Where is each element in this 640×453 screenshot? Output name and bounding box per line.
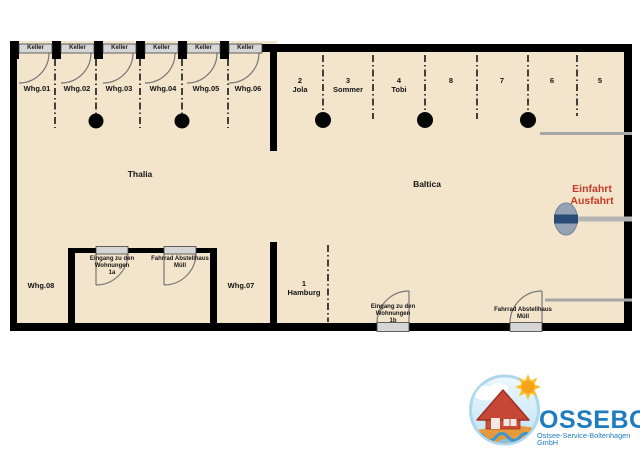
gate-line1: Einfahrt: [570, 183, 613, 195]
spot-number: 6: [550, 76, 554, 85]
keller-label-5: Keller: [195, 45, 212, 51]
parking-spot-8: 8: [449, 76, 453, 85]
spot-name: Hamburg: [288, 288, 321, 297]
floor-area: [10, 41, 632, 331]
keller-label-3: Keller: [111, 45, 128, 51]
building-thalia-label: Thalia: [128, 170, 153, 179]
parking-spot-5: 5: [598, 76, 602, 85]
spot-number: 3: [333, 76, 363, 85]
bike-shed-line2: Müll: [151, 263, 209, 270]
parking-spot-7: 7: [500, 76, 504, 85]
sun-icon: [515, 374, 541, 400]
spot-name: Tobi: [391, 85, 406, 94]
entrance-1b-line3: 1b: [371, 318, 415, 325]
bike-shed-left-label: Fahrrad Abstellhaus Müll: [151, 256, 209, 270]
keller-label-1: Keller: [27, 45, 44, 51]
gate-einfahrt-ausfahrt-label: Einfahrt Ausfahrt: [570, 183, 613, 207]
spot-whg01-label: Whg.01: [24, 85, 51, 93]
building-baltica-label: Baltica: [413, 180, 441, 189]
floor-plan-page: Keller Keller Keller Keller Keller Kelle…: [0, 0, 640, 453]
spot-number: 5: [598, 76, 602, 85]
entrance-1a-line1: Eingang zu den: [90, 256, 134, 263]
parking-spot-6: 6: [550, 76, 554, 85]
spot-whg02-label: Whg.02: [64, 85, 91, 93]
spot-name: Sommer: [333, 85, 363, 94]
entrance-1b-label: Eingang zu den Wohnungen 1b: [371, 304, 415, 325]
spot-number: 2: [292, 76, 307, 85]
spot-name: Jola: [292, 85, 307, 94]
spot-number: 4: [391, 76, 406, 85]
bike-shed-line2: Müll: [494, 314, 552, 321]
spot-number: 8: [449, 76, 453, 85]
floorplan-graphics: [0, 0, 640, 453]
keller-label-6: Keller: [237, 45, 254, 51]
bike-shed-line1: Fahrrad Abstellhaus: [494, 307, 552, 314]
spot-whg05-label: Whg.05: [193, 85, 220, 93]
gate-line2: Ausfahrt: [570, 195, 613, 207]
entrance-1a-line2: Wohnungen: [90, 263, 134, 270]
keller-label-4: Keller: [153, 45, 170, 51]
spot-number: 1: [288, 279, 321, 288]
entrance-1b-line2: Wohnungen: [371, 311, 415, 318]
parking-spot-2: 2 Jola: [292, 76, 307, 94]
spot-number: 7: [500, 76, 504, 85]
bike-shed-right-label: Fahrrad Abstellhaus Müll: [494, 307, 552, 321]
spot-whg03-label: Whg.03: [106, 85, 133, 93]
ossebo-logo-emblem: [469, 374, 541, 447]
bike-shed-line1: Fahrrad Abstellhaus: [151, 256, 209, 263]
keller-label-2: Keller: [69, 45, 86, 51]
parking-spot-3: 3 Sommer: [333, 76, 363, 94]
parking-spot-1: 1 Hamburg: [288, 279, 321, 297]
entrance-1a-line3: 1a: [90, 270, 134, 277]
parking-spot-4: 4 Tobi: [391, 76, 406, 94]
spot-whg08-label: Whg.08: [28, 282, 55, 290]
spot-whg04-label: Whg.04: [150, 85, 177, 93]
spot-whg06-label: Whg.06: [235, 85, 262, 93]
entrance-1a-label: Eingang zu den Wohnungen 1a: [90, 256, 134, 277]
entrance-1b-line1: Eingang zu den: [371, 304, 415, 311]
ossebo-logo-name: OSSEBO: [539, 408, 640, 433]
ossebo-logo-tagline: Ostsee-Service-Boltenhagen GmbH: [537, 432, 640, 447]
spot-whg07-label: Whg.07: [228, 282, 255, 290]
